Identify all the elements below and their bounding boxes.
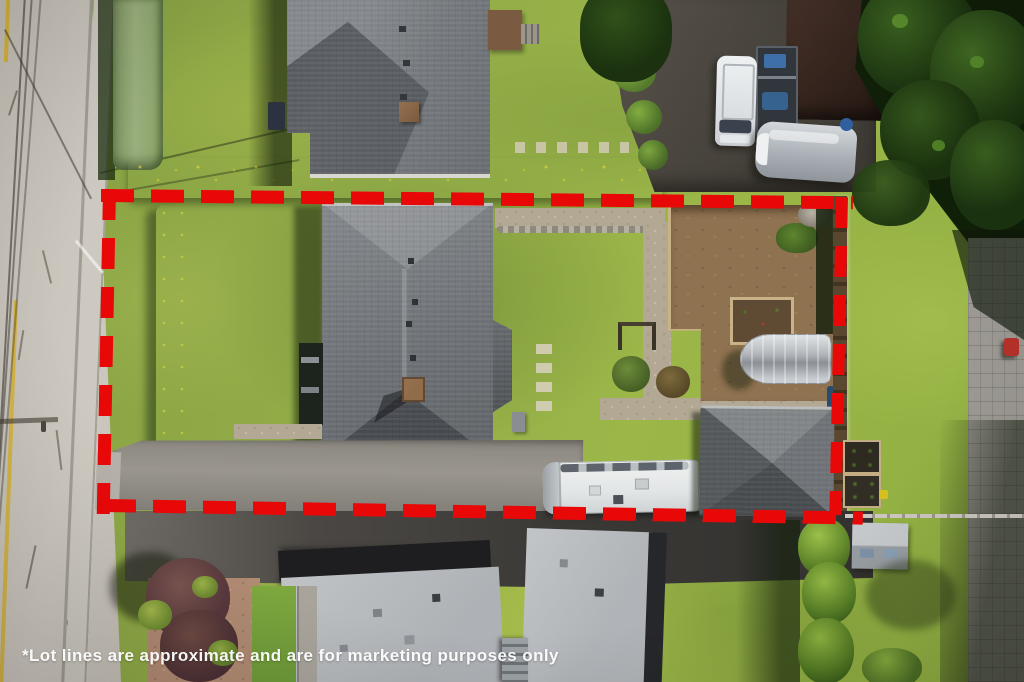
east-stoop [512, 412, 525, 432]
tall-hedge [794, 518, 856, 682]
driveway-bush [638, 140, 668, 170]
yard-path [297, 586, 317, 682]
red-mower [1004, 338, 1019, 356]
conifer [950, 120, 1024, 230]
roof-vent [410, 355, 416, 361]
road-crack [56, 430, 63, 470]
rv-roof-vent [635, 478, 649, 489]
roof-vent [404, 635, 414, 645]
aerial-photo: *Lot lines are approximate and are for m… [0, 0, 1024, 682]
rv-roof-hatch-dark [613, 495, 623, 504]
deck-step [301, 357, 319, 363]
pale-hedge [113, 0, 163, 170]
stepping-stones [536, 344, 552, 414]
conifer-highlight [970, 56, 984, 68]
neighbor-chimney [399, 102, 419, 122]
rv-side-windows [561, 462, 689, 473]
neighbor-house-shadow [248, 0, 292, 186]
shrub-highlight [138, 600, 172, 630]
trailer-cargo-blue [764, 54, 786, 68]
tarp-sheen [769, 129, 840, 144]
van-hood [720, 135, 750, 144]
south-fence-line [845, 514, 1024, 518]
main-roof-texture [322, 203, 512, 458]
greenhouse-tunnel [740, 334, 832, 384]
utility-pole [41, 421, 46, 432]
sec-roof-texture [699, 405, 834, 516]
roof-vent [560, 559, 568, 567]
garden-north-path [495, 208, 665, 228]
shed-skylight [884, 549, 898, 558]
secondary-house-roof [699, 405, 834, 516]
roof-vent [403, 60, 410, 66]
raised-planter [843, 474, 881, 508]
shrub-highlight [192, 576, 218, 598]
main-chimney [402, 377, 425, 402]
bottom-bush [862, 648, 922, 682]
white-van [715, 55, 757, 146]
lawn-tree-shadow [866, 560, 956, 630]
disclaimer-text: *Lot lines are approximate and are for m… [22, 646, 559, 666]
driveway-bush [626, 100, 662, 134]
greenhouse-ribs [740, 334, 832, 384]
roof-vent [400, 94, 407, 100]
olive-shrub [612, 356, 650, 392]
roof-vent [595, 588, 604, 596]
neighbor-roof-texture [287, 0, 490, 178]
stepping-stone-path [515, 142, 629, 153]
hedge-blob [802, 562, 856, 624]
garbage-bins [268, 102, 285, 130]
roof-vent [412, 299, 418, 305]
road-crack [42, 250, 52, 283]
raised-planter [843, 440, 881, 474]
car-front-bumper [755, 133, 769, 166]
yellow-item [879, 490, 888, 499]
path-rock-border [497, 226, 647, 233]
conifer-highlight [892, 14, 908, 28]
brown-shrub [656, 366, 690, 398]
conifer-highlight [932, 140, 945, 151]
shed-skylight [860, 549, 874, 558]
deck-step [301, 387, 319, 393]
hedge-shadow-band [736, 520, 800, 682]
trailer-cargo-blue [762, 92, 788, 110]
lawn-panel [252, 586, 296, 682]
west-deck-stairs [299, 343, 323, 425]
roof-vent [399, 26, 406, 32]
roof-vent [373, 609, 382, 617]
patio-shadow-band [940, 420, 1024, 682]
neighbor-roof-gutter [307, 174, 490, 178]
neighbor-house-roof [287, 0, 490, 178]
arbor-trellis [618, 322, 656, 350]
trailer-rail [758, 76, 796, 79]
rv-roof-vent [589, 485, 601, 495]
tree-clump-top [580, 0, 672, 82]
front-walk [234, 424, 322, 439]
bed-wood-edge [668, 205, 671, 330]
conifer-branch [852, 160, 930, 226]
van-windshield [719, 120, 751, 134]
conifer-trees [840, 0, 1024, 270]
west-flower-hedge [156, 205, 184, 457]
roof-vent [432, 594, 440, 602]
main-house-roof [322, 203, 512, 458]
shed-steps [521, 24, 540, 44]
brown-shed-roof [488, 10, 522, 50]
bed-plants [776, 223, 818, 253]
roof-vent [406, 321, 412, 327]
road-crack [18, 330, 25, 360]
roof-vent [408, 258, 414, 264]
van-roof-rack [722, 64, 755, 121]
hedge-blob [798, 618, 854, 682]
road-crack [25, 545, 36, 588]
